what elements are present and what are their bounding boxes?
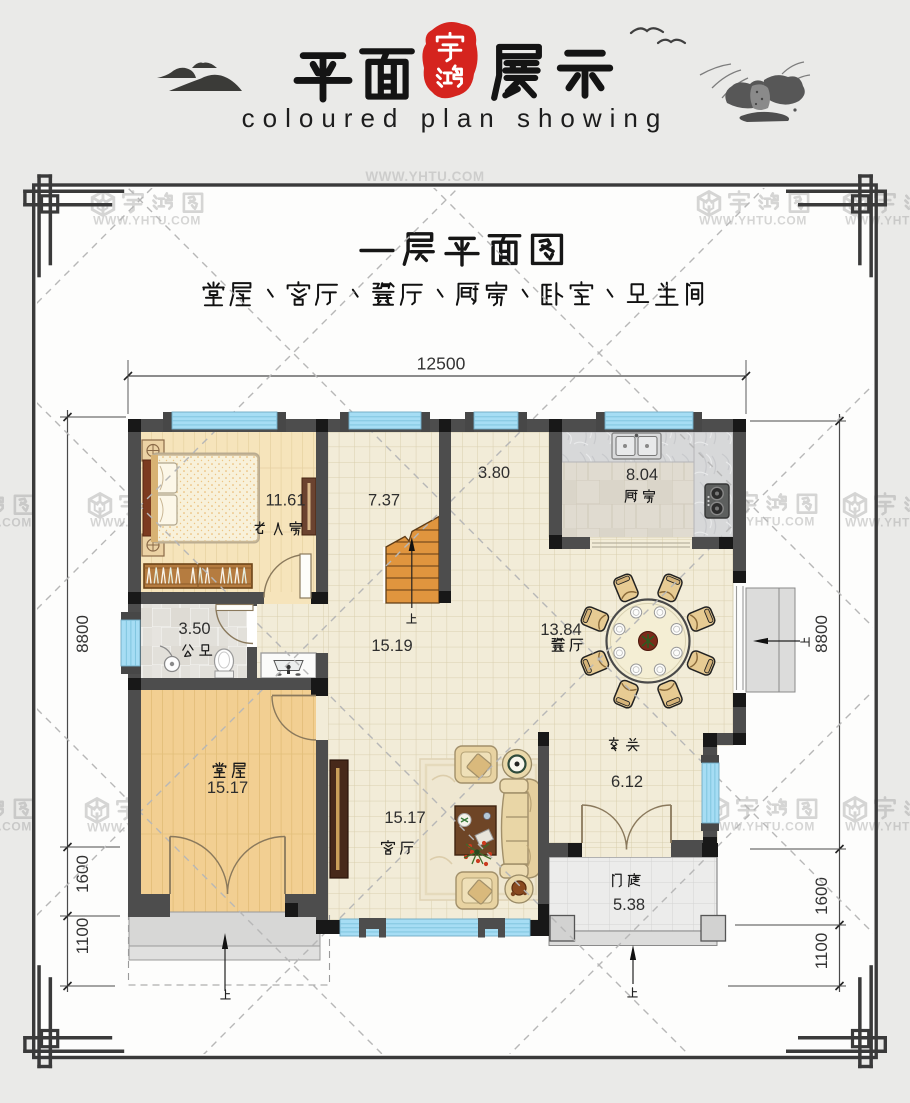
svg-text:13.84: 13.84: [540, 621, 581, 639]
svg-text:WWW.YHTU.COM: WWW.YHTU.COM: [365, 169, 484, 184]
svg-text:15.17: 15.17: [207, 779, 248, 797]
svg-text:WWW.YHTU.COM: WWW.YHTU.COM: [699, 214, 807, 228]
svg-text:3.50: 3.50: [178, 620, 210, 638]
svg-text:5.38: 5.38: [613, 896, 645, 914]
svg-text:1100: 1100: [812, 933, 831, 970]
svg-text:11.61: 11.61: [265, 492, 305, 510]
svg-text:WWW.YHTU.COM: WWW.YHTU.COM: [0, 820, 32, 834]
svg-text:8800: 8800: [812, 615, 831, 653]
svg-text:WWW.YHTU.COM: WWW.YHTU.COM: [707, 820, 815, 834]
svg-text:3.80: 3.80: [478, 464, 510, 482]
svg-text:WWW.YHTU.COM: WWW.YHTU.COM: [93, 214, 201, 228]
svg-text:7.37: 7.37: [368, 492, 400, 510]
svg-text:15.19: 15.19: [371, 637, 412, 655]
svg-text:1600: 1600: [73, 855, 92, 893]
svg-text:8800: 8800: [73, 615, 92, 653]
svg-text:6.12: 6.12: [611, 773, 643, 791]
svg-text:1100: 1100: [73, 918, 92, 955]
svg-text:12500: 12500: [417, 354, 466, 374]
svg-text:WWW.YHTU.COM: WWW.YHTU.COM: [0, 516, 32, 530]
svg-text:15.17: 15.17: [384, 809, 425, 827]
svg-text:8.04: 8.04: [626, 466, 658, 484]
svg-text:1600: 1600: [812, 877, 831, 915]
svg-text:coloured plan showing: coloured plan showing: [242, 103, 669, 133]
